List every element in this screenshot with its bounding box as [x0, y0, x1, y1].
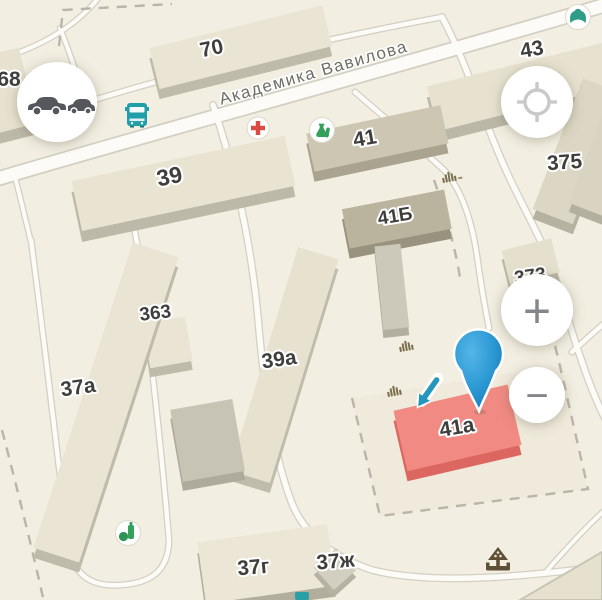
building-label-37a: 37а	[59, 374, 97, 402]
zoom-in-glyph: +	[523, 286, 551, 339]
grocery-icon[interactable]	[116, 521, 141, 546]
building-label-37g: 37г	[236, 555, 270, 581]
building-label-68: 68	[0, 68, 21, 91]
bus-light	[141, 122, 143, 124]
zoom-in-button[interactable]: +	[501, 274, 573, 346]
wheel	[85, 108, 91, 114]
building-top	[170, 399, 245, 482]
building-label-363: 363	[138, 301, 172, 326]
bus-stop-icon-partial[interactable]	[295, 592, 309, 600]
button-circle	[501, 66, 573, 138]
map-canvas[interactable]: Академика Вавилова 68 70 43 39 41 41Б 37…	[0, 0, 602, 600]
bus-windshield	[130, 107, 145, 113]
fountain-basin	[486, 566, 510, 571]
dot	[499, 555, 502, 558]
wheel	[71, 108, 77, 114]
bus-body	[127, 103, 147, 126]
locate-button[interactable]	[501, 66, 573, 138]
bus-stop-icon[interactable]	[125, 103, 149, 128]
building-label-375: 375	[546, 150, 583, 175]
building-label-43: 43	[518, 36, 545, 63]
pharmacy-icon[interactable]	[310, 118, 335, 143]
building-label-41: 41	[351, 125, 378, 152]
poi-green-icon[interactable]	[566, 5, 591, 30]
zoom-out-glyph: −	[525, 374, 548, 418]
medical-cross-icon[interactable]	[247, 117, 269, 139]
basin-end	[486, 563, 490, 567]
dot	[494, 555, 497, 558]
bus-light	[131, 122, 133, 124]
dot	[497, 551, 500, 554]
fruit	[119, 532, 128, 541]
building-label-39: 39	[154, 161, 184, 192]
zoom-out-button[interactable]: −	[509, 367, 565, 423]
fountain-stem	[496, 560, 500, 566]
bus-stripe	[130, 119, 145, 122]
building-gray-block[interactable]	[170, 399, 245, 491]
basin-end	[507, 563, 511, 567]
building-label-37zh: 37ж	[315, 548, 356, 574]
bottle-neck	[130, 522, 133, 526]
traffic-button[interactable]	[17, 62, 97, 142]
wheel	[52, 107, 60, 115]
building-label-70: 70	[198, 35, 226, 62]
map-svg: Академика Вавилова 68 70 43 39 41 41Б 37…	[0, 0, 602, 600]
building-label-39a: 39а	[260, 346, 298, 374]
bottle	[128, 525, 134, 539]
wheel	[33, 107, 41, 115]
